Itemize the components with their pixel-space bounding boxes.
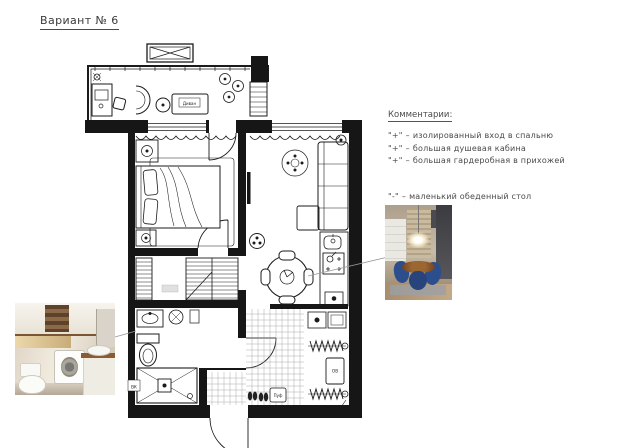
comment-mark: "+"	[388, 144, 403, 153]
shower-cabin	[137, 368, 197, 403]
vent-duct: ВК	[128, 380, 140, 391]
balcony-door	[209, 133, 236, 160]
balcony-sofa: Диван	[172, 94, 208, 114]
hanging-rail-upper	[308, 341, 348, 351]
bathroom-door	[246, 338, 276, 368]
comment-separator: –	[406, 131, 410, 140]
round-rug	[282, 150, 308, 176]
pouf-label: Пуф	[274, 393, 283, 398]
entrance-door	[210, 418, 248, 448]
comment-item-pro: "+"–большая душевая кабина	[388, 144, 613, 153]
vent-label: ВК	[131, 385, 137, 390]
nightstand-plant-2	[136, 230, 156, 246]
comment-item-con: "-"–маленький обеденный стол	[388, 192, 613, 201]
dining-area	[250, 234, 314, 305]
comment-mark: "-"	[388, 192, 399, 201]
dining-plant	[250, 234, 265, 249]
bedroom	[136, 140, 234, 246]
corner-plant	[336, 135, 346, 145]
tv	[247, 172, 251, 204]
photo-pendant-cord	[418, 205, 419, 234]
comment-item-pro: "+"–изолированный вход в спальню	[388, 131, 613, 140]
walls	[85, 56, 362, 418]
photo-washing-machine-door	[61, 357, 78, 377]
balcony: Диван	[88, 66, 268, 122]
corridor-label-box	[162, 285, 178, 292]
comment-item-pro: "+"–большая гардеробная в прихожей	[388, 156, 613, 165]
comment-text: изолированный вход в спальню	[413, 131, 553, 140]
photo-window-strip	[15, 336, 71, 348]
comments-section: Комментарии: "+"–изолированный вход в сп…	[388, 110, 613, 205]
photo-wood-shelf	[45, 305, 69, 333]
balcony-plants	[220, 74, 244, 103]
external-unit-crossed-box	[147, 44, 193, 62]
photo-pendant-light	[407, 232, 429, 248]
page-title: Вариант № 6	[40, 14, 119, 30]
ceiling-lamp	[169, 310, 183, 324]
bath-cabinet	[190, 310, 199, 323]
photo-mirror	[96, 309, 115, 348]
dining-table	[266, 256, 308, 298]
comment-separator: –	[406, 156, 410, 165]
comment-text: маленький обеденный стол	[409, 192, 531, 201]
sofa	[297, 142, 348, 230]
comment-separator: –	[406, 144, 410, 153]
toilet	[137, 334, 159, 366]
bathroom: ВК	[128, 310, 199, 403]
leader-lines	[115, 257, 388, 337]
kitchen-appliance	[325, 292, 343, 305]
photo-sink	[87, 345, 111, 355]
heater-label: ОВ	[332, 369, 338, 374]
bed	[136, 166, 220, 228]
page: { "title": "Вариант № 6", "comments": { …	[0, 0, 620, 448]
vanity-sink	[137, 310, 163, 327]
pouf: Пуф	[270, 388, 286, 402]
comment-text: большая гардеробная в прихожей	[413, 156, 565, 165]
kitchen-stove	[323, 252, 344, 274]
photo-toilet	[18, 375, 46, 394]
comment-text: большая душевая кабина	[413, 144, 526, 153]
photo-white-cabinets	[385, 219, 406, 261]
sofa-label: Диван	[183, 101, 197, 106]
kitchen	[320, 232, 348, 306]
comment-separator: –	[402, 192, 406, 201]
hallway	[207, 309, 304, 405]
hanging-rail-lower	[308, 389, 348, 399]
hanging-chair	[136, 86, 150, 114]
water-heater: ОВ	[326, 358, 344, 384]
dining-photo	[385, 205, 452, 300]
wardrobe-corridor	[136, 258, 238, 300]
comment-mark: "+"	[388, 131, 403, 140]
comment-mark: "+"	[388, 156, 403, 165]
bathroom-photo	[15, 303, 115, 395]
photo-lower-cabinet	[83, 358, 115, 395]
balcony-desk	[92, 73, 126, 116]
comments-heading: Комментарии:	[388, 110, 452, 122]
kitchen-sink	[324, 234, 341, 249]
living-room	[247, 135, 348, 230]
nightstand-plant	[136, 140, 158, 162]
